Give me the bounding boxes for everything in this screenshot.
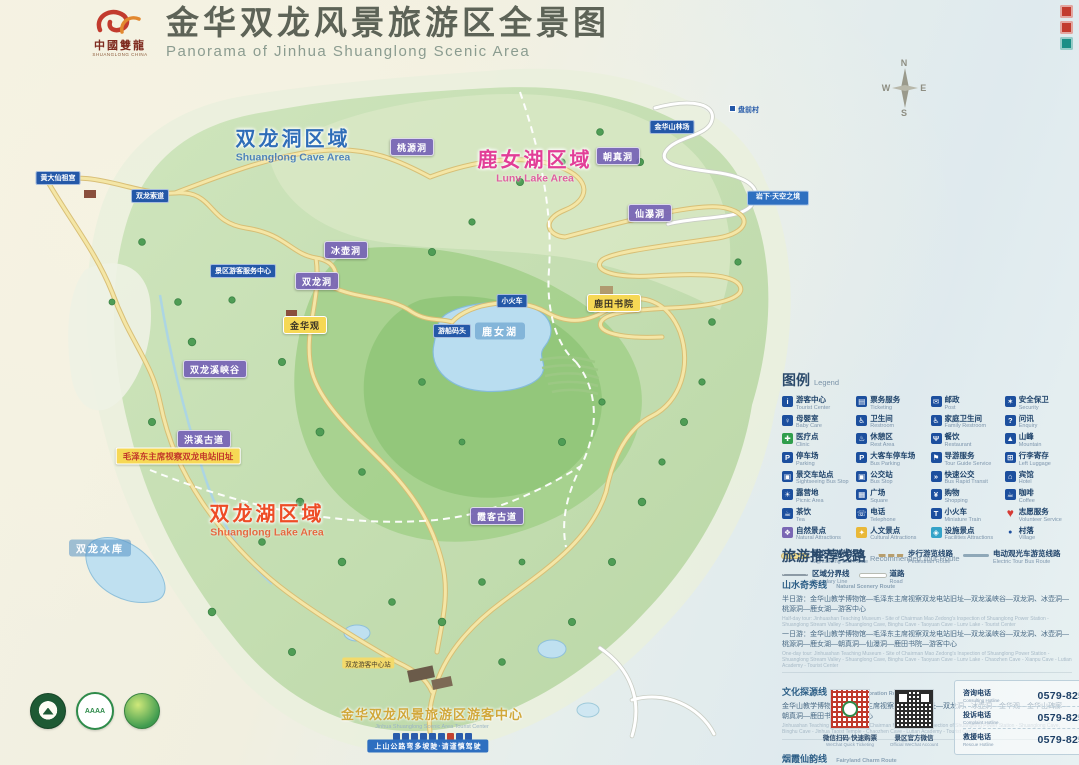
award-badge <box>124 693 160 729</box>
legend-label-zh: 咖啡 <box>1019 489 1035 498</box>
legend-label-zh: 广场 <box>870 489 888 498</box>
legend-label-zh: 餐饮 <box>945 433 972 442</box>
hotline-label-zh: 咨询电话 <box>963 688 1000 698</box>
compass-east: E <box>920 83 926 93</box>
legend-label-zh: 安全保卫 <box>1019 396 1049 405</box>
legend-label-zh: 设施景点 <box>945 527 994 536</box>
region-label: 双龙洞区域 Shuanglong Cave Area <box>236 123 351 164</box>
map-label[interactable]: 洪溪古道 <box>177 430 231 448</box>
legend-label-zh: 大客车停车场 <box>870 452 915 461</box>
legend-label-zh: 村落 <box>1019 527 1035 536</box>
map-label[interactable]: 盘前村 <box>729 105 759 115</box>
legend-item: ☕ 茶饮 Tea <box>782 508 851 523</box>
legend-label-zh: 导游服务 <box>945 452 992 461</box>
legend-label-en: Tea <box>796 517 811 523</box>
legend-label-zh: 邮政 <box>945 396 960 405</box>
legend-label-en: Ticketing <box>870 405 900 411</box>
red-seal-icon <box>1060 21 1073 34</box>
hotline-label-zh: 救援电话 <box>963 732 994 742</box>
map-label[interactable]: 金华山林场 <box>650 120 695 134</box>
legend-item: i 游客中心 Tourist Center <box>782 396 851 411</box>
map-header: 中國雙龍 SHUANGLONG CHINA 金华双龙风景旅游区全景图 Panor… <box>88 6 610 60</box>
award-badges: AAAA <box>30 692 160 730</box>
award-badge: AAAA <box>76 692 114 730</box>
legend-label-zh: 公交站 <box>870 471 893 480</box>
legend-icon: ♨ <box>856 433 867 444</box>
route-name-en: Natural Scenery Route <box>836 584 895 590</box>
legend-icon: » <box>931 471 942 482</box>
compass-south: S <box>876 108 932 118</box>
red-seal-icon <box>1060 5 1073 18</box>
legend-label-en: Enquiry <box>1019 423 1038 429</box>
route-paragraph: 半日游：金华山教学博物馆—毛泽东主席视察双龙电站旧址—双龙溪峡谷—双龙洞、冰壶洞… <box>782 595 1072 628</box>
legend-label-zh: 山峰 <box>1019 433 1042 442</box>
teal-seal-icon <box>1060 37 1073 50</box>
dragon-logo-icon <box>92 6 148 36</box>
legend-icon: i <box>782 396 793 407</box>
corner-seals <box>1060 5 1073 50</box>
legend-label-en: Restroom <box>870 423 894 429</box>
map-label[interactable]: 金华观 <box>283 316 327 334</box>
legend-label-zh: 票务服务 <box>870 396 900 405</box>
qr-caption-en: WeChat Quick Ticketing <box>822 742 878 747</box>
legend-label-zh: 母婴室 <box>796 415 822 424</box>
hotline-label-zh: 投诉电话 <box>963 710 999 720</box>
visitor-center-name: 金华双龙风景旅游区游客中心 <box>341 704 523 723</box>
region-name-en: Shuanglong Cave Area <box>236 152 351 164</box>
map-label[interactable]: 鹿田书院 <box>587 294 641 312</box>
legend-icon: ▦ <box>856 489 867 500</box>
legend-label-zh: 游客中心 <box>796 396 830 405</box>
legend-label-zh: 人文景点 <box>870 527 916 536</box>
compass-west: W <box>882 83 891 93</box>
map-label[interactable]: 双龙洞 <box>295 272 339 290</box>
legend-label-en: Restaurant <box>945 442 972 448</box>
legend-label-en: Village <box>1019 535 1035 541</box>
legend-item: ✶ 安全保卫 Security <box>1005 396 1074 411</box>
legend-label-zh: 家庭卫生间 <box>945 415 987 424</box>
legend-item: ▣ 景交车站点 Sightseeing Bus Stop <box>782 471 851 486</box>
legend-grid: i 游客中心 Tourist Center ▤ 票务服务 Ticketing <box>782 396 1074 541</box>
hotline-box: 咨询电话 Consulting Hotline 0579-82598016 投诉… <box>954 680 1079 755</box>
legend-label-zh: 露营地 <box>796 489 824 498</box>
legend-label-en: Bus Stop <box>870 479 893 485</box>
legend-icon: ▣ <box>856 471 867 482</box>
hotline-label-en: Rescue Hotline <box>963 742 994 747</box>
legend-label-zh: 停车场 <box>796 452 819 461</box>
legend-label-en: Natural Attractions <box>796 535 841 541</box>
legend-icon: ▤ <box>856 396 867 407</box>
route-paragraph: 一日游：金华山教学博物馆—毛泽东主席视察双龙电站旧址—双龙溪峡谷—双龙洞、冰壶洞… <box>782 630 1072 669</box>
legend-item: ▣ 公交站 Bus Stop <box>856 471 925 486</box>
legend-item: Ψ 餐饮 Restaurant <box>931 433 1000 448</box>
route-section: 山水奇秀线 Natural Scenery Route 半日游：金华山教学博物馆… <box>782 571 1072 673</box>
qr-image[interactable] <box>894 689 934 729</box>
legend-item: T 小火车 Miniature Train <box>931 508 1000 523</box>
legend-item: ▦ 广场 Square <box>856 489 925 504</box>
legend-item: ☕ 咖啡 Coffee <box>1005 489 1074 504</box>
legend-label-en: Coffee <box>1019 498 1035 504</box>
qr-group: 微信扫码·快速购票 WeChat Quick Ticketing 景区官方微信 … <box>822 689 942 747</box>
legend-label-en: Clinic <box>796 442 819 448</box>
page-title: 金华双龙风景旅游区全景图 <box>166 6 610 41</box>
legend-label-zh: 医疗点 <box>796 433 819 442</box>
legend-icon: ☕ <box>782 508 793 519</box>
legend-item: ⊞ 行李寄存 Left Luggage <box>1005 452 1074 467</box>
map-label[interactable]: 游船码头 <box>433 324 471 338</box>
legend-item: ? 问讯 Enquiry <box>1005 415 1074 430</box>
legend-label-zh: 茶饮 <box>796 508 811 517</box>
legend-label-en: Family Restroom <box>945 423 987 429</box>
region-label: 双龙湖区域 Shuanglong Lake Area <box>210 498 325 539</box>
legend-label-en: Rest Area <box>870 442 894 448</box>
legend-item: ♿ 卫生间 Restroom <box>856 415 925 430</box>
legend-item: ☀ 露营地 Picnic Area <box>782 489 851 504</box>
route-name-zh: 烟霞仙韵线 <box>782 754 827 764</box>
legend-label-en: Volunteer Service <box>1019 517 1062 523</box>
qr-code[interactable]: 微信扫码·快速购票 WeChat Quick Ticketing <box>822 689 878 747</box>
legend-label-zh: 快速公交 <box>945 471 988 480</box>
region-name-zh: 双龙湖区域 <box>210 498 325 527</box>
legend-label-en: Post <box>945 405 960 411</box>
panorama-map: 中國雙龍 SHUANGLONG CHINA 金华双龙风景旅游区全景图 Panor… <box>0 0 1079 765</box>
legend-item: ♀ 母婴室 Baby Care <box>782 415 851 430</box>
legend-icon: ☕ <box>1005 489 1016 500</box>
legend-icon: ⌂ <box>1005 471 1016 482</box>
legend-label-en: Security <box>1019 405 1049 411</box>
legend-icon: ▲ <box>1005 433 1016 444</box>
qr-caption-zh: 微信扫码·快速购票 <box>822 732 878 742</box>
legend-label-en: Hotel <box>1019 479 1034 485</box>
hotline-number: 0579-82598016 <box>1038 690 1079 702</box>
legend-title: 图例Legend <box>782 370 1074 390</box>
route-text-en: One-day tour: Jinhuashan Teaching Museum… <box>782 651 1072 670</box>
qr-code[interactable]: 景区官方微信 Official WeChat Account <box>886 689 942 747</box>
legend-label-zh: 志愿服务 <box>1019 508 1062 517</box>
legend-item: ☏ 电话 Telephone <box>856 508 925 523</box>
legend-item: P 大客车停车场 Bus Parking <box>856 452 925 467</box>
map-label[interactable]: 仙瀑洞 <box>628 204 672 222</box>
legend-label-en: Left Luggage <box>1019 461 1051 467</box>
logo-subtext: SHUANGLONG CHINA <box>88 52 152 57</box>
route-text-zh: 一日游：金华山教学博物馆—毛泽东主席视察双龙电站旧址—双龙溪峡谷—双龙洞、冰壶洞… <box>782 630 1072 650</box>
legend-icon: ☀ <box>782 489 793 500</box>
page-subtitle: Panorama of Jinhua Shuanglong Scenic Are… <box>166 43 610 60</box>
map-label[interactable]: 景区游客服务中心 <box>210 264 276 278</box>
region-name-zh: 双龙洞区域 <box>236 123 351 152</box>
map-label[interactable]: 桃源洞 <box>390 138 434 156</box>
legend-icon: ⊞ <box>1005 452 1016 463</box>
map-label[interactable]: 鹿女湖 <box>475 323 525 340</box>
legend-item: P 停车场 Parking <box>782 452 851 467</box>
legend-label-en: Cultural Attractions <box>870 535 916 541</box>
award-badge <box>30 693 66 729</box>
legend-label-en: Telephone <box>870 517 895 523</box>
legend-icon: ▣ <box>782 471 793 482</box>
legend-label-en: Tour Guide Service <box>945 461 992 467</box>
legend-icon: ♥ <box>1005 508 1016 519</box>
legend-icon: ✉ <box>931 396 942 407</box>
legend-item: » 快速公交 Bus Rapid Transit <box>931 471 1000 486</box>
qr-image[interactable] <box>830 689 870 729</box>
map-label[interactable]: 黄大仙祖宫 <box>36 171 81 185</box>
routes-title: 旅游推荐线路Recommended Tour Route <box>782 546 1072 566</box>
legend-item: ♥ 志愿服务 Volunteer Service <box>1005 508 1074 523</box>
hotline-number: 0579-82598697 <box>1038 734 1079 746</box>
map-label[interactable]: 冰壶洞 <box>324 241 368 259</box>
region-name-en: Lunv Lake Area <box>478 173 593 185</box>
legend-icon: ✚ <box>782 433 793 444</box>
badge-text: AAAA <box>85 708 105 715</box>
legend-label-en: Bus Rapid Transit <box>945 479 988 485</box>
hotline-row: 投诉电话 Complaint Hotline 0579-82598017 <box>963 707 1079 729</box>
legend-item: ▲ 山峰 Mountain <box>1005 433 1074 448</box>
route-text-zh: 半日游：金华山教学博物馆—毛泽东主席视察双龙电站旧址—双龙溪峡谷—双龙洞、冰壶洞… <box>782 595 1072 615</box>
hotline-label-en: Complaint Hotline <box>963 720 999 725</box>
map-label[interactable]: 小火车 <box>497 294 528 308</box>
hotline-label-en: Consulting Hotline <box>963 698 1000 703</box>
map-label[interactable]: 双龙游客中心站 <box>342 658 394 669</box>
legend-label-en: Parking <box>796 461 819 467</box>
legend-label-en: Tourist Center <box>796 405 830 411</box>
legend-item: ♿ 家庭卫生间 Family Restroom <box>931 415 1000 430</box>
legend-label-en: Bus Parking <box>870 461 915 467</box>
legend-icon: ✶ <box>1005 396 1016 407</box>
legend-label-en: Mountain <box>1019 442 1042 448</box>
contact-block: 微信扫码·快速购票 WeChat Quick Ticketing 景区官方微信 … <box>822 680 1079 755</box>
region-label: 鹿女湖区域 Lunv Lake Area <box>478 144 593 185</box>
legend-icon: ♿ <box>931 415 942 426</box>
legend-icon: ❖ <box>782 527 793 538</box>
legend-label-zh: 电话 <box>870 508 895 517</box>
route-name-zh: 文化探源线 <box>782 687 827 697</box>
compass-needle-icon <box>892 68 918 108</box>
map-label[interactable]: 岩下·天空之境 <box>747 191 809 206</box>
legend-label-en: Baby Care <box>796 423 822 429</box>
legend-label-zh: 购物 <box>945 489 968 498</box>
legend-icon: ✦ <box>856 527 867 538</box>
legend-item: ❖ 自然景点 Natural Attractions <box>782 527 851 542</box>
legend-icon: Ψ <box>931 433 942 444</box>
legend-label-en: Shopping <box>945 498 968 504</box>
hotline-number: 0579-82598017 <box>1038 712 1079 724</box>
legend-icon: ⚑ <box>931 452 942 463</box>
legend-item: ♨ 休憩区 Rest Area <box>856 433 925 448</box>
region-name-en: Shuanglong Lake Area <box>210 527 325 539</box>
legend-icon: ♿ <box>856 415 867 426</box>
compass-north: N <box>876 58 932 68</box>
legend-label-en: Square <box>870 498 888 504</box>
legend-item: ✚ 医疗点 Clinic <box>782 433 851 448</box>
legend-icon: P <box>782 452 793 463</box>
legend-label-zh: 问讯 <box>1019 415 1038 424</box>
hotline-row: 救援电话 Rescue Hotline 0579-82598697 <box>963 729 1079 750</box>
compass-rose: N W E S <box>876 58 932 118</box>
map-label[interactable]: 双龙溪峡谷 <box>183 360 247 378</box>
logo-text: 中國雙龍 <box>88 41 152 52</box>
shuanglong-logo: 中國雙龍 SHUANGLONG CHINA <box>88 6 152 57</box>
legend-icon: ☏ <box>856 508 867 519</box>
map-label[interactable]: 毛泽东主席视察双龙电站旧址 <box>116 448 241 465</box>
legend-item: ▤ 票务服务 Ticketing <box>856 396 925 411</box>
route-text-en: Half-day tour: Jinhuashan Teaching Museu… <box>782 616 1072 629</box>
qr-caption-en: Official WeChat Account <box>886 742 942 747</box>
legend-label-zh: 卫生间 <box>870 415 894 424</box>
legend-label-zh: 小火车 <box>945 508 981 517</box>
route-name-zh: 山水奇秀线 <box>782 580 827 590</box>
legend-label-en: Picnic Area <box>796 498 824 504</box>
legend-icon: T <box>931 508 942 519</box>
map-label[interactable]: 上山公路弯多坡陡·请谨慎驾驶 <box>367 740 488 753</box>
legend-icon: ◈ <box>931 527 942 538</box>
legend-icon: ¥ <box>931 489 942 500</box>
map-label[interactable]: 朝真洞 <box>596 147 640 165</box>
legend-label-zh: 行李寄存 <box>1019 452 1051 461</box>
legend-label-en: Miniature Train <box>945 517 981 523</box>
legend-item: ⌂ 宾馆 Hotel <box>1005 471 1074 486</box>
legend-label-zh: 景交车站点 <box>796 471 849 480</box>
map-label[interactable]: 双龙索道 <box>131 189 169 203</box>
legend-icon: ● <box>1005 527 1016 538</box>
legend-icon: ? <box>1005 415 1016 426</box>
legend-label-en: Facilities Attractions <box>945 535 994 541</box>
map-label[interactable]: 双龙水库 <box>69 540 131 557</box>
map-label[interactable]: 霞客古道 <box>470 507 524 525</box>
legend-icon: P <box>856 452 867 463</box>
legend-item: ◈ 设施景点 Facilities Attractions <box>931 527 1000 542</box>
legend-label-zh: 休憩区 <box>870 433 894 442</box>
legend-item: ⚑ 导游服务 Tour Guide Service <box>931 452 1000 467</box>
legend-icon: ♀ <box>782 415 793 426</box>
route-name-en: Fairyland Charm Route <box>836 758 897 764</box>
legend-item: ✉ 邮政 Post <box>931 396 1000 411</box>
legend-label-zh: 宾馆 <box>1019 471 1034 480</box>
legend-label-en: Sightseeing Bus Stop <box>796 479 849 485</box>
legend-item: ● 村落 Village <box>1005 527 1074 542</box>
hotline-row: 咨询电话 Consulting Hotline 0579-82598016 <box>963 685 1079 707</box>
legend-item: ✦ 人文景点 Cultural Attractions <box>856 527 925 542</box>
legend-label-zh: 自然景点 <box>796 527 841 536</box>
legend-item: ¥ 购物 Shopping <box>931 489 1000 504</box>
qr-caption-zh: 景区官方微信 <box>886 732 942 742</box>
visitor-center-name-en: Jinhua Shuanglong Scenic Area Tourist Ce… <box>341 724 523 730</box>
region-name-zh: 鹿女湖区域 <box>478 144 593 173</box>
